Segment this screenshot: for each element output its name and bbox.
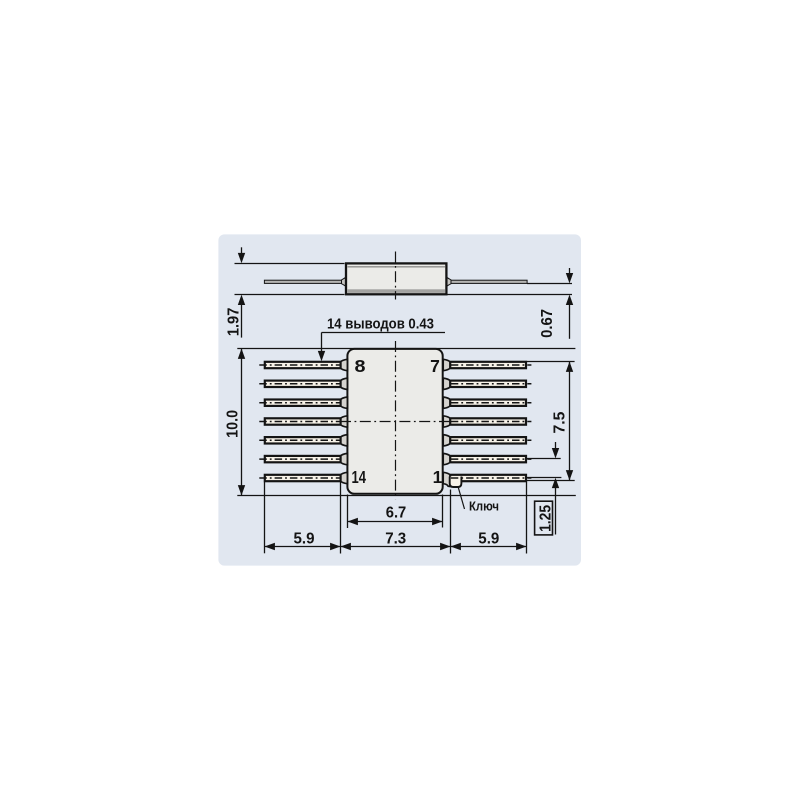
svg-text:7.5: 7.5	[551, 411, 568, 433]
svg-text:1: 1	[433, 467, 443, 487]
svg-text:0.67: 0.67	[539, 309, 556, 338]
svg-text:8: 8	[355, 356, 366, 376]
svg-text:10.0: 10.0	[224, 410, 241, 438]
svg-text:5.9: 5.9	[478, 531, 499, 548]
svg-text:7.3: 7.3	[385, 531, 406, 548]
svg-text:1.97: 1.97	[226, 308, 243, 337]
svg-text:7: 7	[430, 356, 440, 376]
svg-text:6.7: 6.7	[386, 504, 407, 521]
svg-text:1.25: 1.25	[538, 505, 555, 532]
svg-text:14: 14	[351, 467, 366, 487]
svg-text:14 выводов 0.43: 14 выводов 0.43	[327, 317, 434, 333]
svg-text:5.9: 5.9	[294, 531, 315, 548]
svg-text:Ключ: Ключ	[469, 500, 499, 514]
